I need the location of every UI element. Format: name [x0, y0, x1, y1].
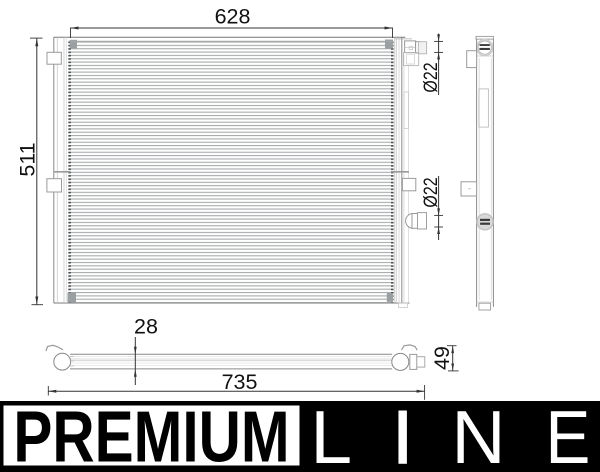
- svg-text:PREMIUM: PREMIUM: [13, 397, 289, 472]
- svg-text:E: E: [545, 396, 590, 472]
- svg-text:Ø22: Ø22: [420, 62, 442, 92]
- svg-text:Ø22: Ø22: [420, 177, 442, 207]
- svg-text:28: 28: [134, 315, 158, 339]
- svg-text:511: 511: [16, 142, 40, 176]
- svg-text:N: N: [451, 395, 505, 472]
- svg-text:I: I: [392, 395, 413, 472]
- svg-text:L: L: [310, 395, 352, 472]
- svg-text:628: 628: [215, 5, 251, 29]
- svg-text:735: 735: [222, 370, 258, 394]
- svg-text:49: 49: [430, 346, 454, 370]
